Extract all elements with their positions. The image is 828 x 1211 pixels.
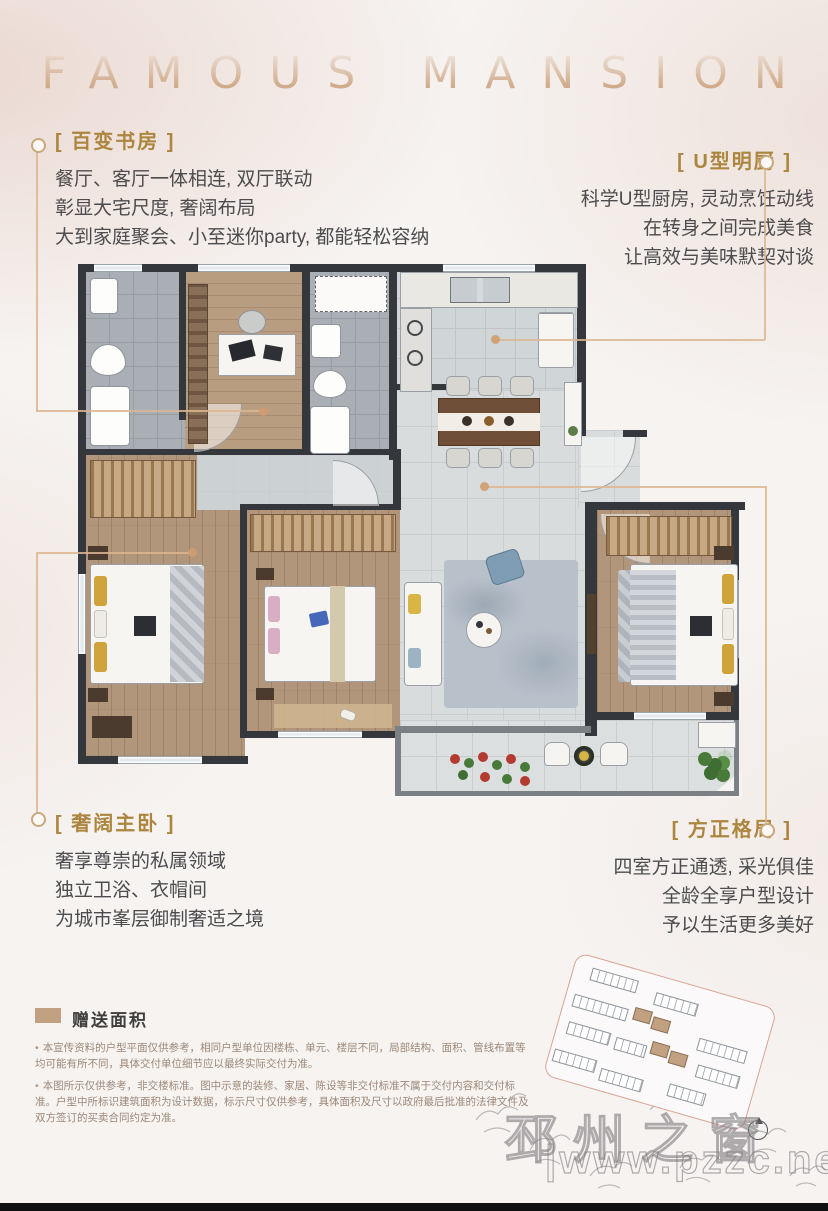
- table-decor: [504, 416, 514, 426]
- site-building: [696, 1038, 748, 1064]
- pillow: [94, 576, 107, 606]
- balcony-railing: [400, 791, 739, 796]
- window: [634, 712, 706, 720]
- site-building: [653, 992, 699, 1017]
- kitchen-sink: [450, 277, 510, 303]
- disclaimer-2: •本图所示仅供参考，非交楼标准。图中示意的装修、家居、陈设等非交付标准不属于交付…: [35, 1078, 535, 1126]
- disclaimer-text: 本图所示仅供参考，非交楼标准。图中示意的装修、家居、陈设等非交付标准不属于交付内…: [35, 1080, 529, 1124]
- balcony-chair: [600, 742, 628, 766]
- dining-chair: [510, 448, 534, 468]
- watermark-url: |www.pzzc.net: [545, 1138, 828, 1183]
- leader-marker-kitchen: [759, 155, 774, 170]
- feature-master-line: 独立卫浴、衣帽间: [55, 876, 264, 905]
- bed-throw: [690, 616, 712, 636]
- bookshelf: [188, 284, 208, 444]
- bedroom-rug: [274, 704, 392, 728]
- stove-burner: [407, 320, 423, 336]
- site-building-highlighted: [650, 1016, 671, 1033]
- site-building-highlighted: [668, 1050, 689, 1067]
- shower-area: [315, 276, 387, 312]
- living-rug: [444, 560, 578, 708]
- bed-2: [264, 586, 376, 682]
- bottom-letterbox-bar: [0, 1203, 828, 1211]
- legend-label: 赠送面积: [72, 1006, 148, 1031]
- flyer-page: FAMOUS MANSION [ 百变书房 ] 餐厅、客厅一体相连, 双厅联动 …: [0, 0, 828, 1211]
- feature-study-line: 大到家庭聚会、小至迷你party, 都能轻松容纳: [55, 223, 429, 252]
- dining-chair: [510, 376, 534, 396]
- feature-study: [ 百变书房 ] 餐厅、客厅一体相连, 双厅联动 彰显大宅尺度, 奢阔布局 大到…: [55, 128, 429, 252]
- bullet: •: [35, 1042, 39, 1054]
- bed-blanket: [630, 570, 676, 680]
- wardrobe: [250, 514, 396, 552]
- flower-planter: [450, 754, 460, 764]
- leader-line: [36, 552, 192, 554]
- stove-burner: [407, 350, 423, 366]
- feature-layout-line: 四室方正通透, 采光俱佳: [484, 853, 814, 882]
- vanity-sink: [310, 406, 350, 454]
- site-building-highlighted: [632, 1007, 653, 1024]
- desk-item: [263, 345, 283, 362]
- floor-plan: [78, 264, 746, 801]
- wall-balcony: [395, 733, 401, 796]
- plant: [568, 426, 578, 436]
- nightstand: [88, 688, 108, 702]
- pillow: [94, 642, 107, 672]
- feature-study-line: 餐厅、客厅一体相连, 双厅联动: [55, 165, 429, 194]
- leader-marker-layout: [760, 823, 775, 838]
- pillow: [722, 608, 734, 640]
- feature-layout-line: 予以生活更多美好: [484, 911, 814, 940]
- leader-line: [765, 488, 767, 823]
- table-decor: [462, 416, 472, 426]
- feature-master: [ 奢阔主卧 ] 奢享尊崇的私属领域 独立卫浴、衣帽间 为城市峯层御制奢适之境: [55, 810, 264, 934]
- window: [443, 264, 535, 272]
- wall: [623, 430, 647, 437]
- legend-swatch: [35, 1008, 61, 1023]
- leader-dot-layout: [480, 482, 489, 491]
- leader-dot-master: [188, 548, 197, 557]
- wall: [393, 449, 401, 510]
- shoe-cabinet: [564, 382, 582, 446]
- pillow: [722, 574, 734, 604]
- feature-study-line: 彰显大宅尺度, 奢阔布局: [55, 194, 429, 223]
- feature-master-line: 为城市峯层御制奢适之境: [55, 905, 264, 934]
- bullet: •: [35, 1080, 39, 1092]
- leader-dot-study: [259, 407, 268, 416]
- site-building: [598, 1068, 644, 1093]
- nightstand: [256, 568, 274, 580]
- dining-chair: [446, 376, 470, 396]
- bed-blanket: [170, 566, 204, 682]
- nightstand: [714, 546, 734, 560]
- table-decor: [484, 416, 494, 426]
- bed-runner: [330, 586, 345, 682]
- coffee-table: [466, 612, 502, 648]
- vanity-sink: [90, 386, 130, 446]
- dining-chair: [478, 376, 502, 396]
- leader-dot-kitchen: [491, 335, 500, 344]
- washbasin: [311, 324, 341, 358]
- pillow: [268, 628, 280, 654]
- wardrobe: [90, 460, 196, 518]
- dresser: [92, 716, 132, 738]
- site-building-highlighted: [649, 1041, 670, 1058]
- leader-line: [36, 151, 38, 411]
- wall: [78, 449, 400, 455]
- pillow: [94, 610, 107, 638]
- window: [278, 731, 362, 738]
- balcony-cabinet: [698, 722, 736, 748]
- coffee-table-decor: [486, 628, 492, 634]
- feature-layout-line: 全龄全享户型设计: [484, 882, 814, 911]
- site-building: [589, 968, 639, 994]
- wall: [302, 264, 310, 454]
- toilet: [313, 370, 347, 398]
- bed-throw: [134, 616, 156, 636]
- toilet: [90, 344, 126, 376]
- feature-study-title: [ 百变书房 ]: [55, 128, 429, 157]
- wall-balcony: [395, 726, 591, 733]
- window: [118, 756, 202, 764]
- site-building: [571, 994, 628, 1022]
- feature-master-title: [ 奢阔主卧 ]: [55, 810, 264, 839]
- site-building: [566, 1021, 612, 1046]
- tv-cabinet: [587, 594, 596, 654]
- site-building: [613, 1037, 647, 1058]
- balcony-chair: [544, 742, 570, 766]
- feature-master-line: 奢享尊崇的私属领域: [55, 847, 264, 876]
- nightstand: [714, 692, 734, 706]
- disclaimer-text: 本宣传资料的户型平面仅供参考，相同户型单位因楼栋、单元、楼层不同，局部结构、面积…: [35, 1042, 526, 1070]
- plant: [698, 752, 712, 766]
- washbasin: [90, 278, 118, 314]
- page-title: FAMOUS MANSION: [0, 48, 828, 99]
- leader-line: [497, 339, 765, 341]
- site-building: [552, 1048, 598, 1073]
- dining-chair: [478, 448, 502, 468]
- dining-chair: [446, 448, 470, 468]
- desk-chair: [238, 310, 266, 334]
- wall: [240, 510, 247, 737]
- window: [94, 264, 142, 272]
- coffee-table-decor: [476, 621, 483, 628]
- leader-line: [36, 554, 38, 812]
- leader-line: [487, 486, 767, 488]
- sofa-pillow: [408, 594, 421, 614]
- wall: [585, 502, 745, 510]
- nightstand: [256, 688, 274, 700]
- disclaimer-1: •本宣传资料的户型平面仅供参考，相同户型单位因楼栋、单元、楼层不同，局部结构、面…: [35, 1040, 535, 1072]
- window: [198, 264, 290, 272]
- leader-line: [764, 168, 766, 340]
- window: [78, 574, 86, 654]
- leader-marker-study: [31, 138, 46, 153]
- desk: [218, 334, 296, 376]
- sofa-pillow: [408, 648, 421, 668]
- wall: [78, 264, 86, 764]
- wall: [179, 270, 186, 420]
- pillow: [268, 596, 280, 622]
- table-food: [579, 751, 589, 761]
- leader-line: [36, 410, 264, 412]
- site-building: [695, 1064, 741, 1089]
- pillow: [722, 644, 734, 674]
- leader-marker-master: [31, 812, 46, 827]
- wall: [389, 264, 397, 460]
